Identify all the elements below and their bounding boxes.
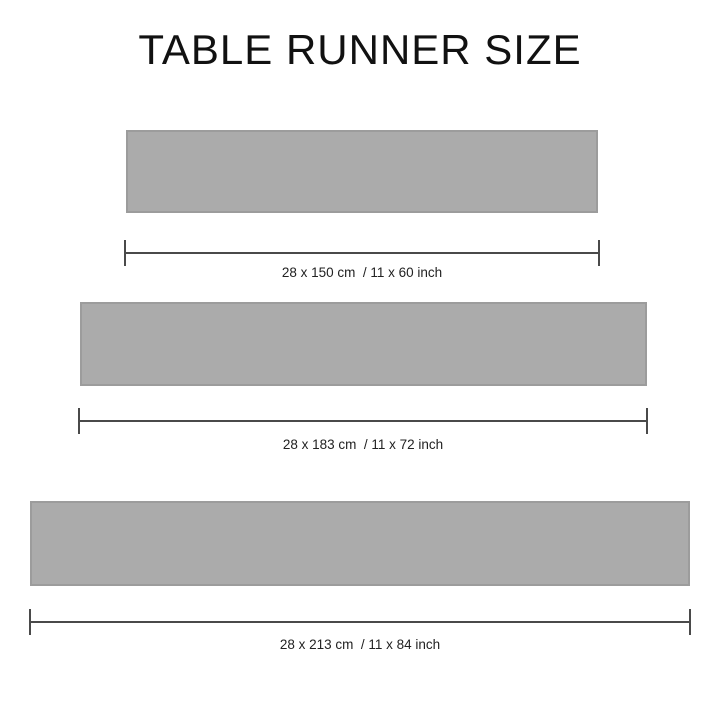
dimension-tick-right <box>598 240 600 266</box>
size-label-183cm: 28 x 183 cm / 11 x 72 inch <box>79 437 647 452</box>
size-chart: TABLE RUNNER SIZE 28 x 150 cm / 11 x 60 … <box>0 0 720 720</box>
runner-rectangle-150cm <box>126 130 598 213</box>
runner-rectangle-183cm <box>80 302 647 386</box>
dimension-tick-left <box>124 240 126 266</box>
size-label-150cm: 28 x 150 cm / 11 x 60 inch <box>125 265 599 280</box>
dimension-tick-right <box>646 408 648 434</box>
dimension-tick-left <box>78 408 80 434</box>
dimension-tick-left <box>29 609 31 635</box>
dimension-line-213cm <box>30 621 690 623</box>
size-label-213cm: 28 x 213 cm / 11 x 84 inch <box>30 637 690 652</box>
dimension-line-183cm <box>79 420 647 422</box>
dimension-tick-right <box>689 609 691 635</box>
page-title: TABLE RUNNER SIZE <box>0 26 720 74</box>
runner-rectangle-213cm <box>30 501 690 586</box>
dimension-line-150cm <box>125 252 599 254</box>
